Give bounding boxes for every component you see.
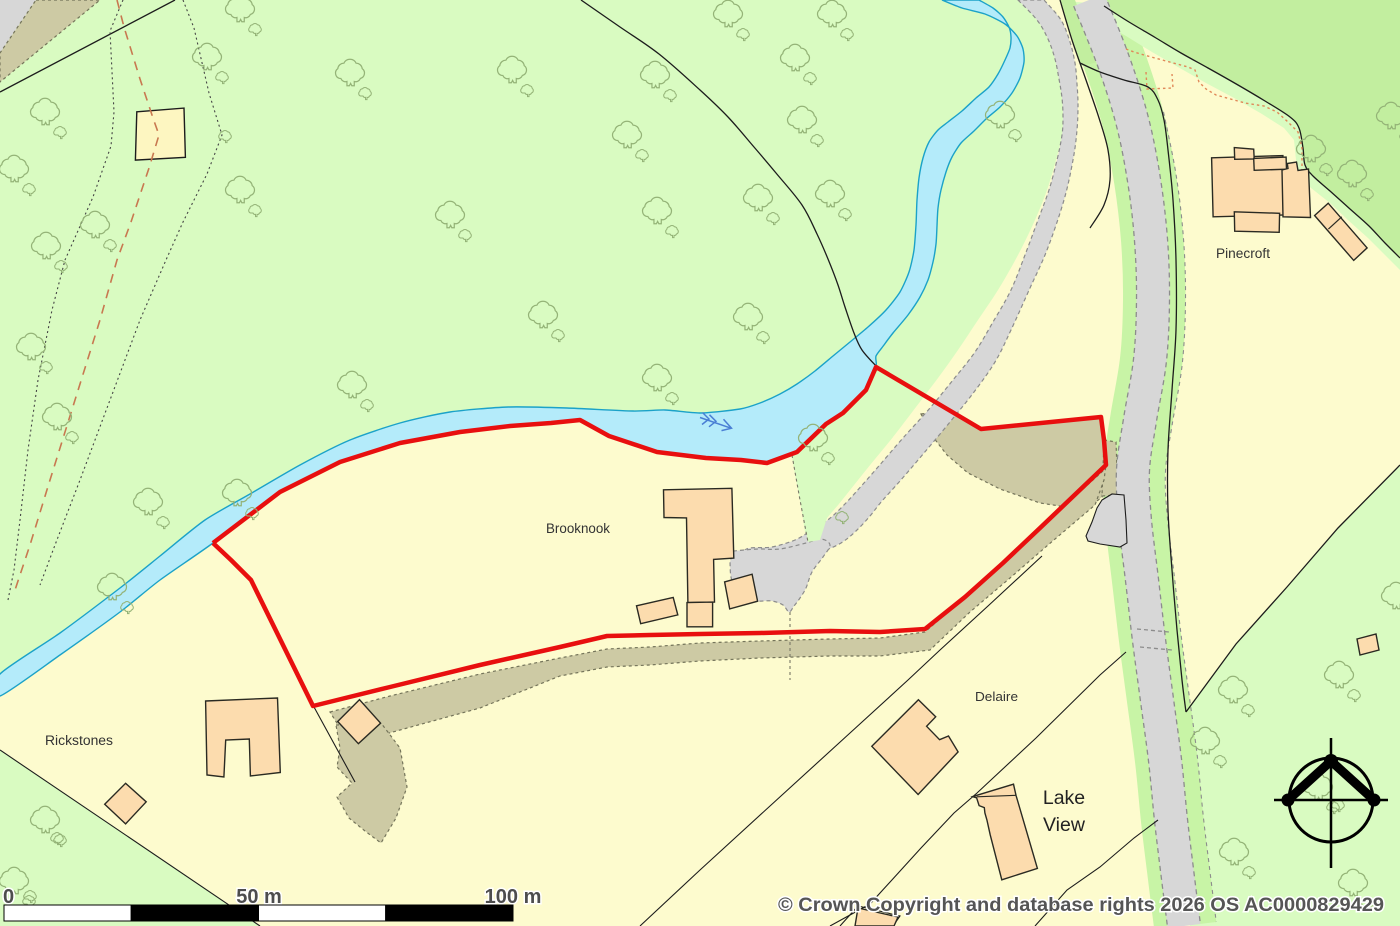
svg-text:Lake: Lake	[1043, 787, 1085, 809]
svg-text:0: 0	[3, 886, 14, 908]
svg-text:Pinecroft: Pinecroft	[1216, 246, 1270, 261]
svg-text:Brooknook: Brooknook	[546, 521, 610, 536]
svg-text:Rickstones: Rickstones	[45, 733, 113, 748]
svg-text:© Crown Copyright and database: © Crown Copyright and database rights 20…	[778, 895, 1384, 916]
svg-text:Delaire: Delaire	[975, 689, 1018, 704]
svg-text:View: View	[1043, 814, 1086, 836]
svg-text:50 m: 50 m	[236, 886, 282, 908]
svg-text:100 m: 100 m	[485, 886, 542, 908]
